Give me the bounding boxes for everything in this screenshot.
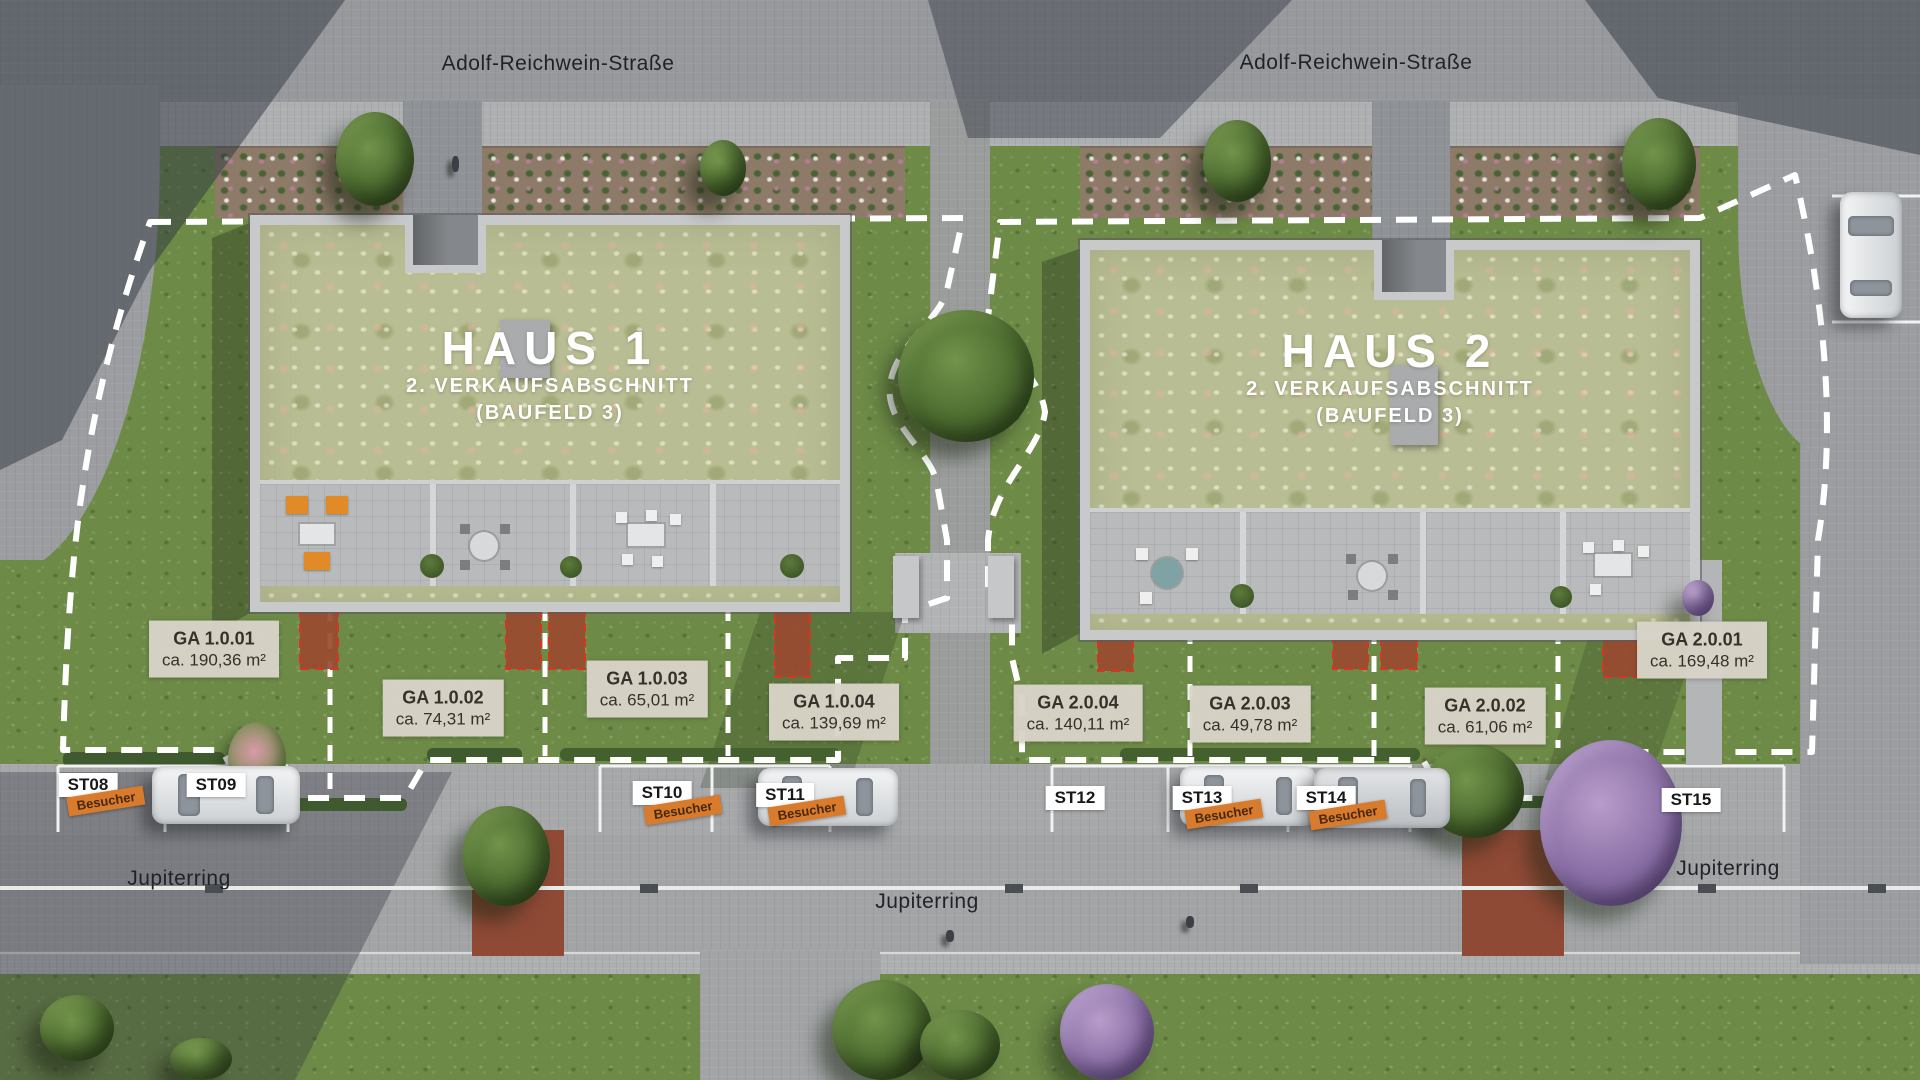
haus2-entrance-notch	[1374, 240, 1454, 300]
terrace-wall	[710, 484, 716, 586]
dining-chair-white	[622, 554, 633, 565]
terrace-planter	[780, 554, 804, 578]
label-st09: ST09	[187, 773, 246, 797]
bush-south-west2	[170, 1038, 232, 1080]
car-rear-window	[1850, 280, 1892, 296]
dining-chair	[460, 524, 470, 534]
dining-table	[470, 532, 498, 560]
label-ga-2-0-04: GA 2.0.04 ca. 140,11 m²	[1014, 685, 1143, 742]
bush-south-west	[40, 995, 114, 1061]
haus1-subtitle2: (BAUFELD 3)	[260, 401, 840, 425]
car-rear-window	[856, 778, 873, 816]
dining-chair-white	[1590, 584, 1601, 595]
chair	[1186, 548, 1198, 560]
dining-chair-white	[646, 510, 657, 521]
haus2-subtitle: 2. VERKAUFSABSCHNITT	[1090, 374, 1690, 404]
label-ga-1-0-01: GA 1.0.01 ca. 190,36 m²	[149, 621, 279, 678]
dining-chair	[1348, 590, 1358, 600]
label-ga-1-0-04: GA 1.0.04 ca. 139,69 m²	[769, 684, 899, 741]
label-ga-1-0-03: GA 1.0.03 ca. 65,01 m²	[587, 661, 708, 718]
dining-table	[1358, 562, 1386, 590]
haus2-name: HAUS 2	[1090, 328, 1690, 374]
street-label-adolf-west: Adolf-Reichwein-Straße	[442, 52, 675, 76]
dining-chair-white	[1638, 546, 1649, 557]
haus2-title: HAUS 2 2. VERKAUFSABSCHNITT (BAUFELD 3)	[1090, 328, 1690, 428]
chair	[1136, 548, 1148, 560]
car-windshield	[1848, 216, 1894, 236]
label-ga-2-0-02: GA 2.0.02 ca. 61,06 m²	[1425, 688, 1546, 745]
lounge-chair	[286, 496, 308, 514]
dining-chair	[1388, 554, 1398, 564]
haus1-title: HAUS 1 2. VERKAUFSABSCHNITT (BAUFELD 3)	[260, 325, 840, 425]
dining-chair-white	[1613, 540, 1624, 551]
tree-flowerbed-east1	[1203, 120, 1271, 202]
tree-flowerbed-east2	[1622, 118, 1696, 210]
dining-chair-white	[616, 512, 627, 523]
lounge-chair	[326, 496, 348, 514]
dining-chair	[500, 524, 510, 534]
dining-chair	[460, 560, 470, 570]
tree-purple-south	[1060, 984, 1154, 1080]
label-st12: ST12	[1046, 786, 1105, 810]
terrace-planter	[1550, 586, 1572, 608]
plaza-planter-east	[988, 556, 1014, 618]
tree-green-south1	[832, 980, 932, 1080]
person-cyclist	[452, 156, 459, 172]
haus1-entrance-notch	[405, 215, 486, 273]
haus1-name: HAUS 1	[260, 325, 840, 371]
street-label-jupiterring-east: Jupiterring	[1676, 857, 1780, 881]
label-ga-2-0-01: GA 2.0.01 ca. 169,48 m²	[1637, 622, 1767, 679]
dining-chair-white	[652, 556, 663, 567]
dining-table-white	[628, 524, 664, 546]
lounge-table	[300, 524, 334, 544]
terrace-planter	[420, 554, 444, 578]
car-rear-window	[256, 776, 274, 814]
tree-flowerbed-mid	[700, 140, 746, 196]
building-haus2: HAUS 2 2. VERKAUFSABSCHNITT (BAUFELD 3)	[1080, 240, 1700, 640]
terrace-wall	[1420, 512, 1426, 614]
bush-lilac-ga201	[1682, 580, 1714, 616]
person-crossing	[946, 930, 954, 942]
dining-chair-white	[1583, 542, 1594, 553]
building-haus1: HAUS 1 2. VERKAUFSABSCHNITT (BAUFELD 3)	[250, 215, 850, 612]
lounge-chair	[304, 552, 330, 570]
tree-crossing-west	[462, 806, 550, 906]
plaza-planter-west	[893, 556, 919, 618]
dining-chair	[1388, 590, 1398, 600]
haus2-terrace	[1090, 508, 1690, 614]
site-plan: HAUS 1 2. VERKAUFSABSCHNITT (BAUFELD 3)	[0, 0, 1920, 1080]
round-table	[1152, 558, 1182, 588]
car-rear-window	[1410, 779, 1426, 817]
dining-chair	[1346, 554, 1356, 564]
street-label-jupiterring-west: Jupiterring	[127, 867, 231, 891]
label-ga-2-0-03: GA 2.0.03 ca. 49,78 m²	[1190, 686, 1311, 743]
haus1-terrace	[260, 480, 840, 586]
person-sidewalk	[1186, 916, 1194, 928]
car-rear-window	[1276, 777, 1292, 815]
tree-purple-east	[1540, 740, 1682, 906]
chair	[1140, 592, 1152, 604]
label-ga-1-0-02: GA 1.0.02 ca. 74,31 m²	[383, 680, 504, 737]
tree-flowerbed-west	[336, 112, 414, 206]
label-st15: ST15	[1662, 788, 1721, 812]
haus1-subtitle: 2. VERKAUFSABSCHNITT	[260, 371, 840, 401]
tree-green-south2	[920, 1010, 1000, 1080]
haus2-subtitle2: (BAUFELD 3)	[1090, 404, 1690, 428]
dining-chair	[500, 560, 510, 570]
terrace-planter	[1230, 584, 1254, 608]
terrace-planter	[560, 556, 582, 578]
car-northeast	[1840, 192, 1902, 318]
street-label-jupiterring-center: Jupiterring	[875, 890, 979, 914]
tree-central-walkway	[898, 310, 1034, 442]
dining-table-white	[1595, 554, 1631, 576]
street-label-adolf-east: Adolf-Reichwein-Straße	[1240, 51, 1473, 75]
dining-chair-white	[670, 514, 681, 525]
